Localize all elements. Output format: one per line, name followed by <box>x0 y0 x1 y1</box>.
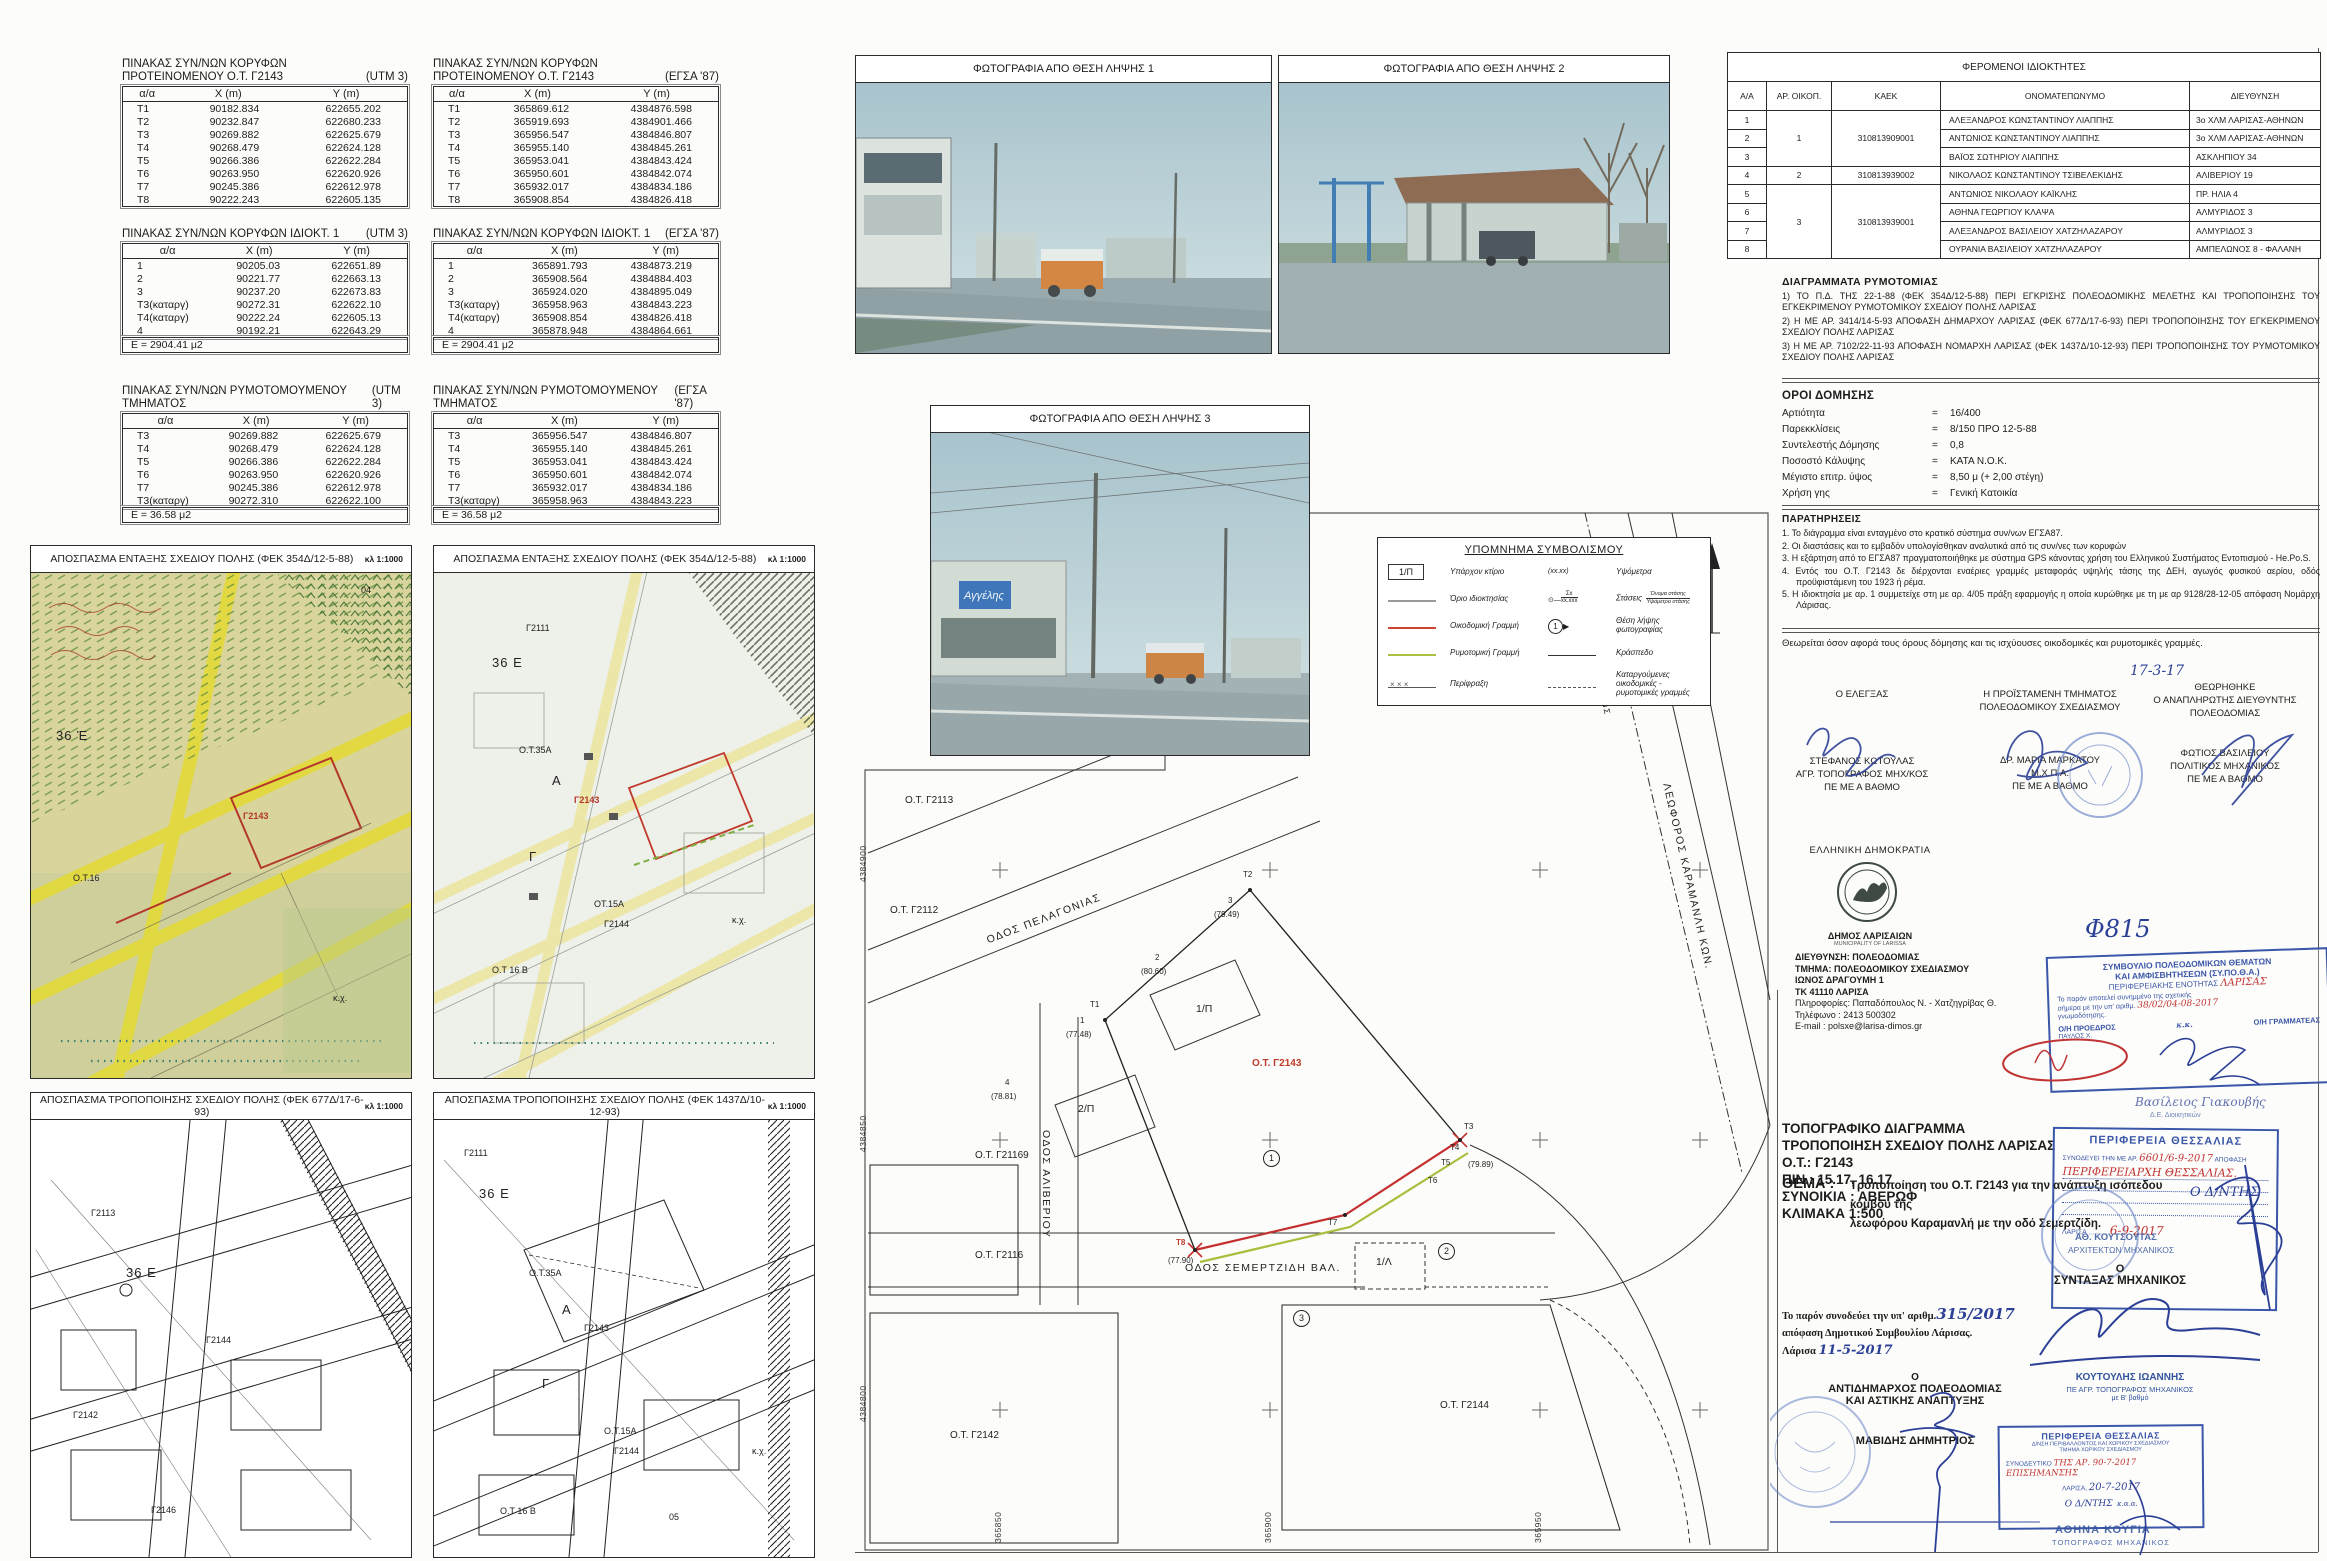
municipality-emblem <box>1835 860 1899 924</box>
map-label: κ.χ. <box>333 993 347 1003</box>
map-label: ΟΤ.15Α <box>594 899 624 909</box>
rymotomia-title: ΔΙΑΓΡΑΜΜΑΤΑ ΡΥΜΟΤΟΜΙΑΣ <box>1782 276 2320 288</box>
map-label: Γ2143 <box>584 1323 609 1333</box>
plan-label: Ο.Τ. Γ21169 <box>975 1150 1029 1161</box>
excerpt-panel-3: ΑΠΟΣΠΑΣΜΑ ΤΡΟΠΟΠΟΙΗΣΗΣ ΣΧΕΔΙΟΥ ΠΟΛΗΣ (ΦΕ… <box>30 1092 412 1558</box>
plan-label: (79.49) <box>1214 910 1239 919</box>
table-row: Τ3(καταργ)90272.310622622.100 <box>123 494 408 508</box>
topographic-diagram-sheet: Ο.Τ. Γ2113Ο.Τ. Γ2112ΟΔΟΣ ΠΕΛΑΓΟΝΙΑΣΟ.Τ. … <box>0 0 2327 1561</box>
street-alignment-line-green <box>1200 1153 1468 1262</box>
map-label: Ο.Τ.15Α <box>604 1426 637 1436</box>
map-label: Ο.Τ 16 Β <box>492 965 528 975</box>
signature-squiggles <box>1782 700 2322 830</box>
agency-department: ΤΜΗΜΑ: ΠΟΛΕΟΔΟΜΙΚΟΥ ΣΧΕΔΙΑΣΜΟΥ <box>1795 964 2015 976</box>
block-G2143-outline <box>1105 890 1460 1250</box>
map-label: Γ2113 <box>91 1208 115 1218</box>
rymotomia-item: 2) Η ΜΕ ΑΡ. 3414/14-5-93 ΑΠΟΦΑΣΗ ΔΗΜΑΡΧΟ… <box>1782 316 2320 338</box>
plan-label: 4 <box>1005 1078 1009 1087</box>
municipality-name: ΔΗΜΟΣ ΛΑΡΙΣΑΙΩΝ <box>1795 931 1945 941</box>
abolished-lines-symbol <box>1548 687 1596 688</box>
plan-label: 365950 <box>1533 1512 1543 1543</box>
plan-label: Τ5 <box>1441 1158 1450 1167</box>
director-title: ΑΡΧΙΤΕΚΤΩΝ ΜΗΧΑΝΙΚΟΣ <box>2068 1245 2174 1255</box>
photo-panel-1: ΦΩΤΟΓΡΑΦΙΑ ΑΠΟ ΘΕΣΗ ΛΗΨΗΣ 1 <box>855 55 1272 354</box>
fence-symbol <box>1388 687 1436 688</box>
legend-building-symbol: 1/Π <box>1388 564 1424 580</box>
plan-label: 2/Π <box>1078 1103 1094 1115</box>
table-row: Τ4(καταργ)365908.8544384826.418 <box>434 311 719 324</box>
accompany-note: Το παρόν συνοδεύει την υπ' αριθμ.315/201… <box>1782 1306 2032 1360</box>
table-row: Τ390269.882622625.679 <box>123 429 408 443</box>
agency-address2: ΤΚ 41110 ΛΑΡΙΣΑ <box>1795 987 2015 999</box>
map-label: 36 Ε <box>492 655 523 670</box>
plan-label: Ο.Τ. Γ2144 <box>1440 1400 1489 1411</box>
table-row: Τ290232.847622680.233 <box>123 115 408 128</box>
plan-label: 4384800 <box>858 1385 868 1422</box>
thema-label: ΘΕΜΑ : <box>1782 1176 1834 1192</box>
plan-label: Ο.Τ. Γ2112 <box>890 905 938 916</box>
excerpt-panel-4: ΑΠΟΣΠΑΣΜΑ ΤΡΟΠΟΠΟΙΗΣΗΣ ΣΧΕΔΙΟΥ ΠΟΛΗΣ (ΦΕ… <box>433 1092 815 1558</box>
plan-label: Τ2 <box>1243 870 1252 879</box>
table-row: Τ190182.834622655.202 <box>123 102 408 116</box>
note-item: 1. Το διάγραμμα είναι ενταγμένο στο κρατ… <box>1782 528 2320 539</box>
table-row: Τ2365919.6934384901.466 <box>434 115 719 128</box>
map-label: Γ2142 <box>73 1410 98 1420</box>
map-label: Α <box>562 1302 572 1317</box>
plan-label: Ο.Τ. Γ2142 <box>950 1430 999 1441</box>
street-alignment-symbol <box>1388 654 1436 656</box>
curb-symbol <box>1548 655 1596 656</box>
plan-label: ΟΔΟΣ ΣΕΜΕΡΤΖΙΔΗ ΒΑΛ. <box>1185 1262 1341 1274</box>
deleted-point-marks <box>1188 1133 1467 1257</box>
map-label: Γ <box>542 1376 550 1391</box>
map-label: 04 <box>361 585 371 595</box>
table-row: Τ690263.950622620.926 <box>123 167 408 180</box>
plan-label: 4384900 <box>858 845 868 882</box>
photo-3-title: ΦΩΤΟΓΡΑΦΙΑ ΑΠΟ ΘΕΣΗ ΛΗΨΗΣ 3 <box>931 406 1309 433</box>
plan-label: (80.60) <box>1141 967 1166 976</box>
map-label: Ο.Τ.35Α <box>519 745 552 755</box>
terms-row: Ποσοστό Κάλυψης=ΚΑΤΑ Ν.Ο.Κ. <box>1782 454 2320 470</box>
table-row: Τ890222.243622605.135 <box>123 193 408 207</box>
table-row: Τ490268.479622624.128 <box>123 442 408 455</box>
owner-row: 53310813939001ΑΝΤΩΝΙΟΣ ΝΙΚΟΛΑΟΥ ΚΑΪΚΛΗΣΠ… <box>1728 185 2321 204</box>
station-symbol: ⊙—Σxxx.xxx <box>1548 591 1610 605</box>
excerpt-map-1-art <box>31 573 412 1078</box>
plan-label: Τ4 <box>1450 1143 1459 1152</box>
table-row: Τ3(καταργ)90272.31622622.10 <box>123 298 408 311</box>
table-row: 2365908.5644384884.403 <box>434 272 719 285</box>
plan-label: 1/Λ <box>1376 1256 1392 1268</box>
table-row: Τ590266.386622622.284 <box>123 455 408 468</box>
terms-row: Συντελεστής Δόμησης=0,8 <box>1782 438 2320 454</box>
plan-label: 4384850 <box>858 1115 868 1152</box>
table-row: Τ5365953.0414384843.424 <box>434 154 719 167</box>
map-label: 36 Έ <box>56 728 88 743</box>
table-row: Τ390269.882622625.679 <box>123 128 408 141</box>
table-row: 4365878.9484384864.661 <box>434 324 719 338</box>
owners-table: ΦΕΡΟΜΕΝΟΙ ΙΔΙΟΚΤΗΤΕΣ Α/Α ΑΡ. ΟΙΚΟΠ. ΚΑΕΚ… <box>1727 52 2321 259</box>
vertex-points <box>1103 888 1462 1252</box>
agency-direction: ΔΙΕΥΘΥΝΣΗ: ΠΟΛΕΟΔΟΜΙΑΣ <box>1795 952 2015 964</box>
map-label: Γ2143 <box>574 795 599 805</box>
photo-1-title: ΦΩΤΟΓΡΑΦΙΑ ΑΠΟ ΘΕΣΗ ΛΗΨΗΣ 1 <box>856 56 1271 83</box>
rymotomia-item: 1) ΤΟ Π.Δ. ΤΗΣ 22-1-88 (ΦΕΚ 354Δ/12-5-88… <box>1782 291 2320 313</box>
note-item: 3. Η εξάρτηση από το ΕΓΣΑ87 πραγματοποιή… <box>1782 553 2320 564</box>
table-row: 3365924.0204384895.049 <box>434 285 719 298</box>
excerpt-map-2-art <box>434 573 815 1078</box>
excerpt-panel-1: ΑΠΟΣΠΑΣΜΑ ΕΝΤΑΞΗΣ ΣΧΕΔΙΟΥ ΠΟΛΗΣ (ΦΕΚ 354… <box>30 545 412 1079</box>
agency-phone: Τηλέφωνο : 2413 500302 <box>1795 1010 2015 1022</box>
table-row: Τ690263.950622620.926 <box>123 468 408 481</box>
agency-contact: Πληροφορίες: Παπαδόπουλος Ν. - Χατζηγρίβ… <box>1795 998 2015 1010</box>
photo-panel-3: ΦΩΤΟΓΡΑΦΙΑ ΑΠΟ ΘΕΣΗ ΛΗΨΗΣ 3 Αγγέλης <box>930 405 1310 756</box>
plan-label: Ο.Τ. Γ2143 <box>1252 1058 1301 1069</box>
excerpt-map-1: 0436 ΈΓ2143Ο.Τ.16κ.χ. <box>30 573 412 1079</box>
table-row: Τ5365953.0414384843.424 <box>434 455 719 468</box>
plan-label: (78.81) <box>991 1092 1016 1101</box>
table-utm-proposed: ΠΙΝΑΚΑΣ ΣΥΝ/ΝΩΝ ΚΟΡΥΦΩΝΠΡΟΤΕΙΝΟΜΕΝΟΥ Ο.Τ… <box>122 58 408 207</box>
map-label: Ο.Τ 16 Β <box>500 1506 536 1516</box>
table-row: Τ790245.386622612.978 <box>123 481 408 494</box>
map-label: Γ2111 <box>464 1148 488 1158</box>
excerpt-map-4: Γ211136 ΕΟ.Τ.35ΑΑΓ2143ΓΟ.Τ.15ΑΓ2144Ο.Τ 1… <box>433 1120 815 1558</box>
secretary-grade: Δ.Ε. Διοικητικών <box>2150 1112 2201 1119</box>
terms-row: Μέγιστο επιτρ. ύψος=8,50 μ (+ 2,00 στέγη… <box>1782 470 2320 486</box>
municipality-name-en: MUNICIPALITY OF LARISSA <box>1795 941 1945 947</box>
plan-label: 1/Π <box>1196 1003 1212 1015</box>
map-label: Ο.Τ.35Α <box>529 1268 562 1278</box>
table-egsa-proposed: ΠΙΝΑΚΑΣ ΣΥΝ/ΝΩΝ ΚΟΡΥΦΩΝΠΡΟΤΕΙΝΟΜΕΝΟΥ Ο.Τ… <box>433 58 719 207</box>
agency-block: ΕΛΛΗΝΙΚΗ ΔΗΜΟΚΡΑΤΙΑ ΔΗΜΟΣ ΛΑΡΙΣΑΙΩΝ MUNI… <box>1795 845 2015 1033</box>
map-label: κ.χ. <box>732 915 746 925</box>
terms-title: ΟΡΟΙ ΔΟΜΗΣΗΣ <box>1782 390 2320 402</box>
plan-label: 365900 <box>1263 1512 1273 1543</box>
table-row: Τ1365869.6124384876.598 <box>434 102 719 116</box>
agency-email: E-mail : polsxe@larisa-dimos.gr <box>1795 1021 2015 1033</box>
plan-label: 3 <box>1228 896 1232 905</box>
plan-label: Τ1 <box>1090 1000 1099 1009</box>
map-label: Γ2111 <box>526 623 550 633</box>
plan-label: ΟΔΟΣ ΑΛΙΒΕΡΙΟΥ <box>1040 1130 1052 1238</box>
excerpt-map-3: Γ211336 ΕΓ2144Γ2142Γ2146 <box>30 1120 412 1558</box>
table-row: 190205.03622651.89 <box>123 259 408 273</box>
engineer-block: Ο ΣΥΝΤΑΞΑΣ ΜΗΧΑΝΙΚΟΣ <box>2020 1263 2220 1287</box>
table-utm-property1: ΠΙΝΑΚΑΣ ΣΥΝ/ΝΩΝ ΚΟΡΥΦΩΝ ΙΔΙΟΚΤ. 1(UTM 3)… <box>122 228 408 353</box>
notes-section: ΠΑΡΑΤΗΡΗΣΕΙΣ 1. Το διάγραμμα είναι ενταγ… <box>1782 514 2320 613</box>
owner-row: 11310813909001ΑΛΕΞΑΝΔΡΟΣ ΚΩΝΣΤΑΝΤΙΝΟΥ ΛΙ… <box>1728 111 2321 130</box>
table-row: Τ6365950.6014384842.074 <box>434 468 719 481</box>
photo-2-image <box>1279 83 1669 353</box>
photo-panel-2: ΦΩΤΟΓΡΑΦΙΑ ΑΠΟ ΘΕΣΗ ΛΗΨΗΣ 2 <box>1278 55 1670 354</box>
map-label: 36 Ε <box>126 1265 157 1280</box>
engineer-signature <box>2020 1290 2280 1380</box>
photo-1-image <box>856 83 1271 353</box>
approval-statement: Θεωρείται όσον αφορά τους όρους δόμησης … <box>1782 638 2320 649</box>
building-terms-section: ΟΡΟΙ ΔΟΜΗΣΗΣ Αρτιότητα=16/400 Παρεκκλίσε… <box>1782 390 2320 502</box>
plan-label: Τ7 <box>1328 1218 1337 1227</box>
plan-label: 2 <box>1438 1243 1455 1260</box>
map-label: Γ2143 <box>243 811 268 821</box>
map-label: Γ <box>529 849 537 864</box>
legend-box: ΥΠΟΜΝΗΜΑ ΣΥΜΒΟΛΙΣΜΟΥ 1/Π Υπάρχον κτίριο … <box>1377 537 1711 706</box>
table-row: Τ790245.386622612.978 <box>123 180 408 193</box>
rymotomia-section: ΔΙΑΓΡΑΜΜΑΤΑ ΡΥΜΟΤΟΜΙΑΣ 1) ΤΟ Π.Δ. ΤΗΣ 22… <box>1782 276 2320 366</box>
terms-row: Παρεκκλίσεις=8/150 ΠΡΟ 12-5-88 <box>1782 422 2320 438</box>
plan-label: 1 <box>1080 1016 1084 1025</box>
map-label: Α <box>552 773 562 788</box>
table-row: Τ3(καταργ)365958.9634384843.223 <box>434 494 719 508</box>
map-label: Γ2144 <box>206 1335 231 1345</box>
plan-label: 3 <box>1293 1310 1310 1327</box>
plan-label: Τ3 <box>1464 1122 1473 1131</box>
map-label: κ.χ. <box>752 1446 766 1456</box>
table-egsa-property1: ΠΙΝΑΚΑΣ ΣΥΝ/ΝΩΝ ΚΟΡΥΦΩΝ ΙΔΙΟΚΤ. 1(ΕΓΣΑ '… <box>433 228 719 353</box>
plan-label: (79.89) <box>1468 1160 1493 1169</box>
map-label: Γ2146 <box>151 1505 176 1515</box>
city-blocks <box>870 1165 1620 1543</box>
agency-address1: ΙΩΝΟΣ ΔΡΑΓΟΥΜΗ 1 <box>1795 975 2015 987</box>
table-row: Τ4(καταργ)90222.24622605.13 <box>123 311 408 324</box>
file-number-handwritten: Φ815 <box>2085 915 2150 943</box>
plan-label: 1 <box>1263 1150 1280 1167</box>
terms-row: Χρήση γης=Γενική Κατοικία <box>1782 486 2320 502</box>
excerpt-map-2: Γ211136 ΕΟ.Τ.35ΑΑΓ2143ΓΟΤ.15ΑΓ2144Ο.Τ 16… <box>433 573 815 1079</box>
table-row: Τ3(καταργ)365958.9634384843.223 <box>434 298 719 311</box>
terms-row: Αρτιότητα=16/400 <box>1782 406 2320 422</box>
table-row: Τ4365955.1404384845.261 <box>434 442 719 455</box>
rymotomia-item: 3) Η ΜΕ ΑΡ. 7102/22-11-93 ΑΠΟΦΑΣΗ ΝΟΜΑΡΧ… <box>1782 341 2320 363</box>
plan-label: Ο.Τ. Γ2116 <box>975 1250 1023 1261</box>
topographer-signature <box>2100 1470 2220 1560</box>
table-row: Τ490268.479622624.128 <box>123 141 408 154</box>
photo-position-symbol: 1 <box>1548 619 1563 634</box>
plan-label: 365850 <box>993 1512 1003 1543</box>
note-item: 5. Η ιδιοκτησία με αρ. 1 συμμετείχε στη … <box>1782 589 2320 611</box>
legend-title: ΥΠΟΜΝΗΜΑ ΣΥΜΒΟΛΙΣΜΟΥ <box>1388 544 1700 556</box>
notes-title: ΠΑΡΑΤΗΡΗΣΕΙΣ <box>1782 514 2320 525</box>
secretary-name-script: Βασίλειος Γιακουβής <box>2135 1095 2266 1109</box>
building-line-symbol <box>1388 627 1436 629</box>
table-row: Τ7365932.0174384834.186 <box>434 481 719 494</box>
table-row: Τ3365956.5474384846.807 <box>434 429 719 443</box>
excerpt-panel-2: ΑΠΟΣΠΑΣΜΑ ΕΝΤΑΞΗΣ ΣΧΕΔΙΟΥ ΠΟΛΗΣ (ΦΕΚ 354… <box>433 545 815 1079</box>
plan-label: (77.48) <box>1066 1030 1091 1039</box>
table-row: Τ590266.386622622.284 <box>123 154 408 167</box>
plan-label: Τ6 <box>1428 1176 1437 1185</box>
plan-label: 2 <box>1155 953 1159 962</box>
table-row: 290221.77622663.13 <box>123 272 408 285</box>
table-utm-expropriated: ΠΙΝΑΚΑΣ ΣΥΝ/ΝΩΝ ΡΥΜΟΤΟΜΟΥΜΕΝΟΥ ΤΜΗΜΑΤΟΣ(… <box>122 385 408 523</box>
note-item: 4. Εντός του Ο.Τ. Γ2143 δε διέρχονται εν… <box>1782 566 2320 588</box>
property-line-symbol <box>1388 600 1436 602</box>
plan-label: Τ8 <box>1176 1238 1185 1247</box>
photo-2-title: ΦΩΤΟΓΡΑΦΙΑ ΑΠΟ ΘΕΣΗ ΛΗΨΗΣ 2 <box>1279 56 1669 83</box>
map-label: Γ2144 <box>614 1446 639 1456</box>
table-egsa-expropriated: ΠΙΝΑΚΑΣ ΣΥΝ/ΝΩΝ ΡΥΜΟΤΟΜΟΥΜΕΝΟΥ ΤΜΗΜΑΤΟΣ(… <box>433 385 719 523</box>
table-row: 490192.21622643.29 <box>123 324 408 338</box>
map-label: Ο.Τ.16 <box>73 873 100 883</box>
director-name: ΑΘ. ΚΟΥΤΣΟΥΤΑΣ <box>2075 1232 2157 1243</box>
plan-label: (77.90) <box>1168 1256 1193 1265</box>
map-label: Γ2144 <box>604 919 629 929</box>
note-item: 2. Οι διαστάσεις και το εμβαδόν υπολογίσ… <box>1782 541 2320 552</box>
table-row: Τ3365956.5474384846.807 <box>434 128 719 141</box>
state-label: ΕΛΛΗΝΙΚΗ ΔΗΜΟΚΡΑΤΙΑ <box>1795 845 1945 856</box>
approval-date-handwritten: 17-3-17 <box>2130 663 2184 679</box>
table-row: 1365891.7934384873.219 <box>434 259 719 273</box>
map-label: 05 <box>669 1512 679 1522</box>
photo-3-image: Αγγέλης <box>931 433 1309 755</box>
table-row: Τ6365950.6014384842.074 <box>434 167 719 180</box>
map-label: 36 Ε <box>479 1186 510 1201</box>
table-row: Τ4365955.1404384845.261 <box>434 141 719 154</box>
table-row: Τ7365932.0174384834.186 <box>434 180 719 193</box>
table-row: 390237.20622673.83 <box>123 285 408 298</box>
owner-row: 42310813939002ΝΙΚΟΛΑΟΣ ΚΩΝΣΤΑΝΤΙΝΟΥ ΤΣΙΒ… <box>1728 166 2321 185</box>
table-row: Τ8365908.8544384826.418 <box>434 193 719 207</box>
plan-label: Ο.Τ. Γ2113 <box>905 795 953 806</box>
